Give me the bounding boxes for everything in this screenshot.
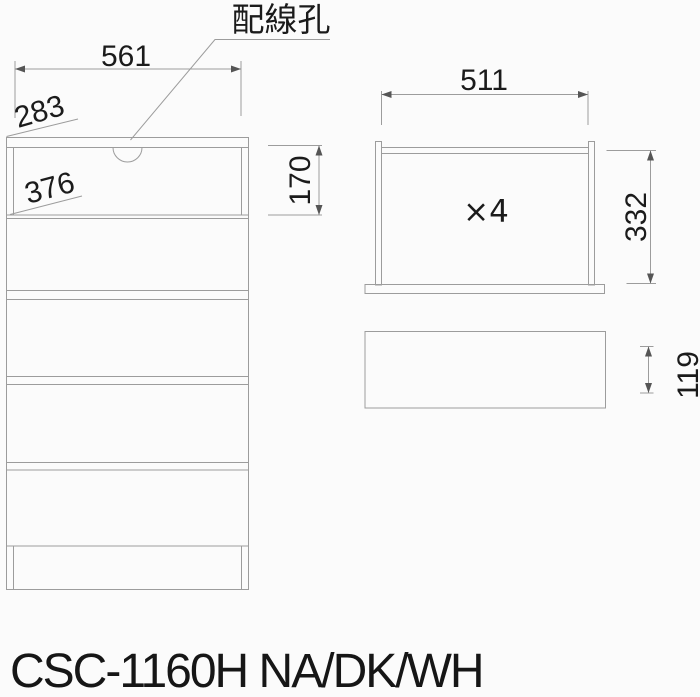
dim-332-value: 332 (620, 192, 653, 242)
dim-283-value: 283 (11, 89, 68, 135)
drawer-side-rail-right (589, 142, 595, 286)
front-view: 配線孔 561 283 376 170 (7, 0, 331, 590)
dim-511-value: 511 (460, 64, 508, 97)
drawer-front-3 (7, 385, 249, 463)
diagram-canvas: 配線孔 561 283 376 170 ×4 (0, 0, 700, 697)
wiring-hole-leader-line (131, 40, 331, 141)
wiring-hole-notch (113, 148, 142, 163)
drawer-quantity-label: ×4 (463, 194, 509, 230)
drawer-view: ×4 511 332 119 (365, 64, 700, 408)
drawer-bottom-plate (365, 285, 605, 294)
dim-119-value: 119 (672, 351, 700, 399)
drawer-side-rail-left (376, 142, 382, 286)
drawer-front-1 (7, 219, 249, 291)
dimension-diagram: 配線孔 561 283 376 170 ×4 (0, 0, 700, 697)
model-number-label: CSC-1160H NA/DK/WH (10, 645, 483, 697)
drawer-top-rail (382, 148, 589, 154)
dim-561-value: 561 (101, 40, 151, 73)
dim-376-value: 376 (21, 166, 78, 211)
dim-170-value: 170 (284, 155, 317, 205)
drawer-front-panel (365, 332, 606, 409)
drawer-front-4 (7, 470, 249, 546)
wiring-hole-label: 配線孔 (232, 0, 331, 39)
drawer-front-2 (7, 300, 249, 377)
